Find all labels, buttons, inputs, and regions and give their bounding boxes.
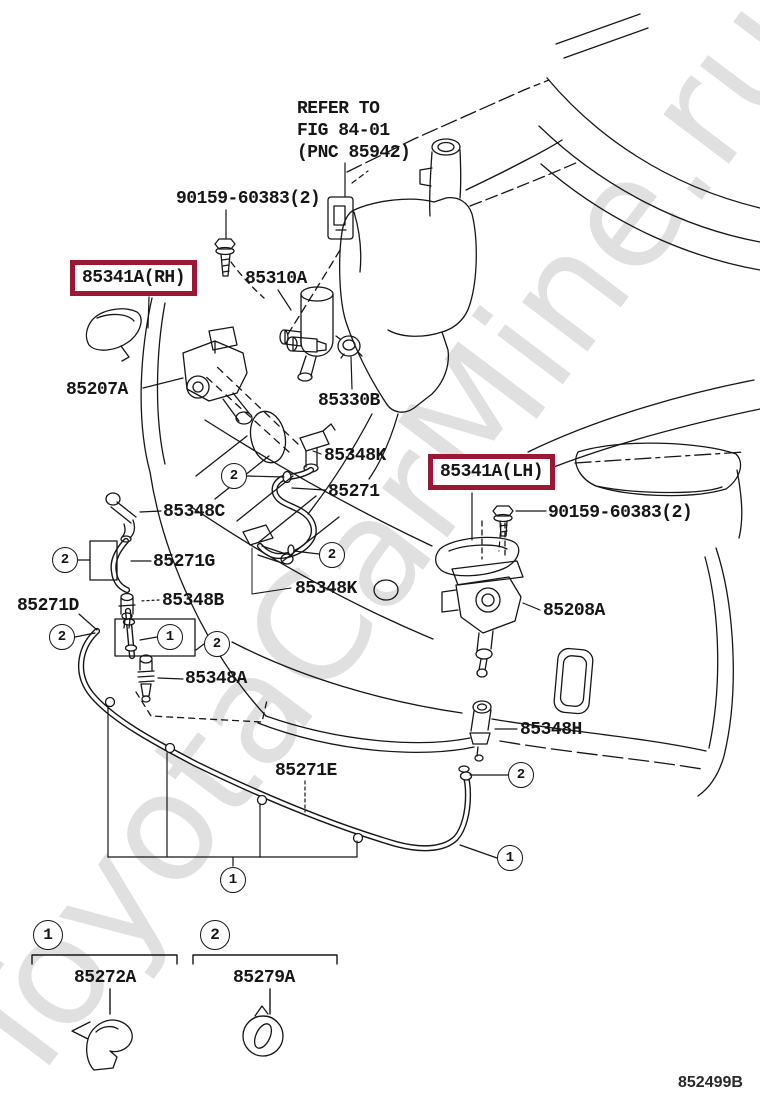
legend-part-85279a: 85279A: [233, 968, 295, 988]
hose-clamps: [106, 472, 472, 843]
part-label-85348k-1: 85348K: [324, 446, 386, 466]
callout-1-a: 1: [157, 624, 183, 650]
screw-right-drawing: [493, 506, 513, 536]
part-label-85348k-2: 85348K: [295, 579, 357, 599]
part-label-90159-60383-top: 90159-60383(2): [176, 189, 320, 209]
elbow-85348c-drawing: [106, 493, 136, 542]
callout-2-e: 2: [319, 542, 345, 568]
lh-cover-drawing: [436, 537, 519, 575]
hoses: [81, 470, 468, 848]
callout-2-c: 2: [49, 624, 75, 650]
callout-2-d: 2: [204, 631, 230, 657]
part-label-90159-60383-right: 90159-60383(2): [548, 503, 692, 523]
callout-2-a: 2: [221, 463, 247, 489]
part-label-85348c: 85348C: [163, 502, 225, 522]
rh-cover-drawing: [86, 309, 141, 361]
callout-1-c: 1: [220, 867, 246, 893]
legend-clip-drawing: [72, 1020, 132, 1070]
callout-2-f: 2: [508, 762, 534, 788]
part-label-85330b: 85330B: [318, 391, 380, 411]
callout-1-b: 1: [497, 845, 523, 871]
part-label-85208a: 85208A: [543, 601, 605, 621]
part-label-85271g: 85271G: [153, 552, 215, 572]
legend-part-85272a: 85272A: [74, 968, 136, 988]
callout-2-b: 2: [52, 547, 78, 573]
nozzle-85348h-drawing: [470, 701, 491, 761]
part-label-85271d: 85271D: [17, 596, 79, 616]
legend-clamp-drawing: [243, 1006, 283, 1056]
actuator-85208a-drawing: [442, 521, 523, 677]
highlight-box-85341a-lh: 85341A(LH): [428, 454, 555, 490]
part-label-85207a: 85207A: [66, 380, 128, 400]
highlight-box-85341a-rh: 85341A(RH): [70, 260, 197, 296]
actuator-85207a-drawing: [183, 327, 252, 424]
part-label-85271e: 85271E: [275, 761, 337, 781]
screw-top-drawing: [215, 239, 235, 276]
part-label-85271: 85271: [328, 482, 380, 502]
part-label-85348b: 85348B: [162, 591, 224, 611]
refer-note: REFER TO FIG 84-01 (PNC 85942): [297, 98, 410, 164]
part-label-85310a: 85310A: [245, 269, 307, 289]
part-label-85348h: 85348H: [520, 720, 582, 740]
legend-callout-2: 2: [200, 920, 230, 950]
parts-diagram-page: ToyotaCarMine.ru: [0, 0, 760, 1112]
document-number: 852499B: [678, 1074, 743, 1092]
parts-diagram-canvas: [0, 0, 760, 1112]
legend-callout-1: 1: [33, 920, 63, 950]
washer-reservoir-drawing: [328, 139, 476, 412]
part-label-85348a: 85348A: [185, 669, 247, 689]
